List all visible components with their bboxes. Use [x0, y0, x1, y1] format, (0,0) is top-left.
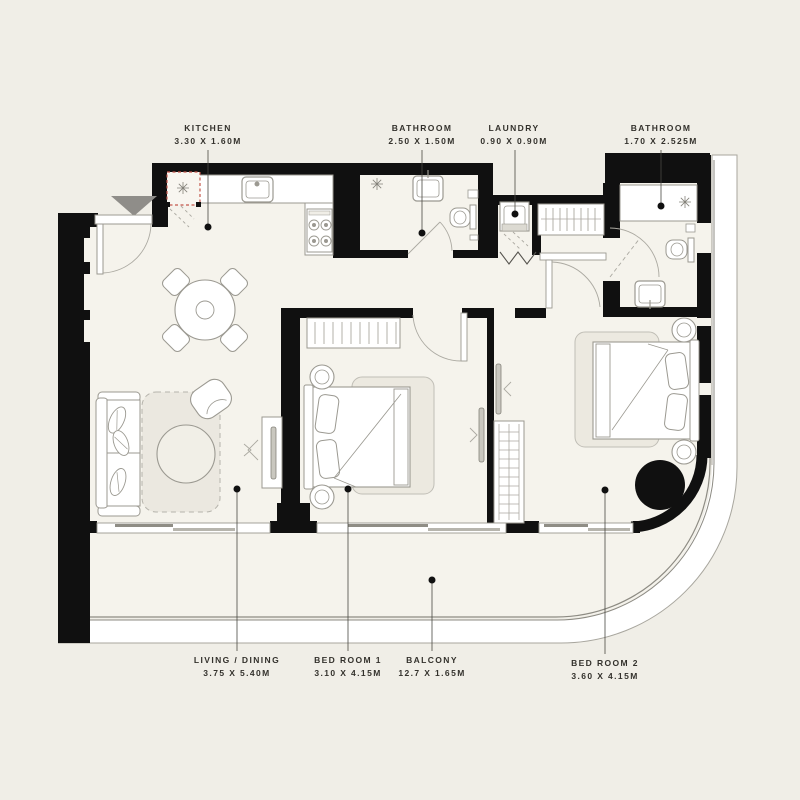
room-label-bedroom-1: BED ROOM 1 3.10 X 4.15M [314, 654, 382, 679]
room-label-bedroom-2: BED ROOM 2 3.60 X 4.15M [571, 657, 639, 682]
room-dims: 2.50 X 1.50M [388, 135, 455, 148]
sofa-icon [96, 392, 140, 516]
bedroom1-door-leaf [461, 313, 467, 361]
room-dims: 12.7 X 1.65M [398, 667, 465, 680]
room-dims: 3.75 X 5.40M [194, 667, 280, 680]
bedroom2-wardrobe-icon [494, 421, 524, 523]
room-name: BED ROOM 1 [314, 654, 382, 667]
room-name: BATHROOM [388, 122, 455, 135]
bedroom1-wardrobe-icon [307, 318, 400, 348]
room-name: LIVING / DINING [194, 654, 280, 667]
entry-threshold [95, 215, 152, 224]
room-label-laundry: LAUNDRY 0.90 X 0.90M [480, 122, 547, 147]
room-name: BALCONY [398, 654, 465, 667]
room-dims: 0.90 X 0.90M [480, 135, 547, 148]
room-name: BATHROOM [624, 122, 698, 135]
wall-bathroom2-top [605, 153, 710, 183]
bathroom2-sink-icon [635, 281, 665, 309]
balcony-sliding-doors [97, 523, 633, 533]
room-name: KITCHEN [174, 122, 241, 135]
room-label-bathroom-2: BATHROOM 1.70 X 2.525M [624, 122, 698, 147]
wall-bedroom-divider [487, 308, 494, 525]
room-name: BED ROOM 2 [571, 657, 639, 670]
room-dims: 3.30 X 1.60M [174, 135, 241, 148]
room-label-kitchen: KITCHEN 3.30 X 1.60M [174, 122, 241, 147]
room-dims: 3.10 X 4.15M [314, 667, 382, 680]
room-label-balcony: BALCONY 12.7 X 1.65M [398, 654, 465, 679]
bed1-icon [304, 365, 410, 509]
room-dims: 1.70 X 2.525M [624, 135, 698, 148]
floor-plan-drawing [0, 0, 800, 800]
coffee-table-icon [157, 425, 215, 483]
stove-icon [307, 209, 332, 252]
room-name: LAUNDRY [480, 122, 547, 135]
entry-door-leaf [97, 224, 103, 274]
kitchen-sink-icon [242, 177, 273, 202]
bedroom2-door-leaf [546, 260, 552, 308]
room-label-living-dining: LIVING / DINING 3.75 X 5.40M [194, 654, 280, 679]
structural-column [635, 460, 685, 510]
room-label-bathroom-1: BATHROOM 2.50 X 1.50M [388, 122, 455, 147]
floor-plan-page: KITCHEN 3.30 X 1.60M BATHROOM 2.50 X 1.5… [0, 0, 800, 800]
room-dims: 3.60 X 4.15M [571, 670, 639, 683]
